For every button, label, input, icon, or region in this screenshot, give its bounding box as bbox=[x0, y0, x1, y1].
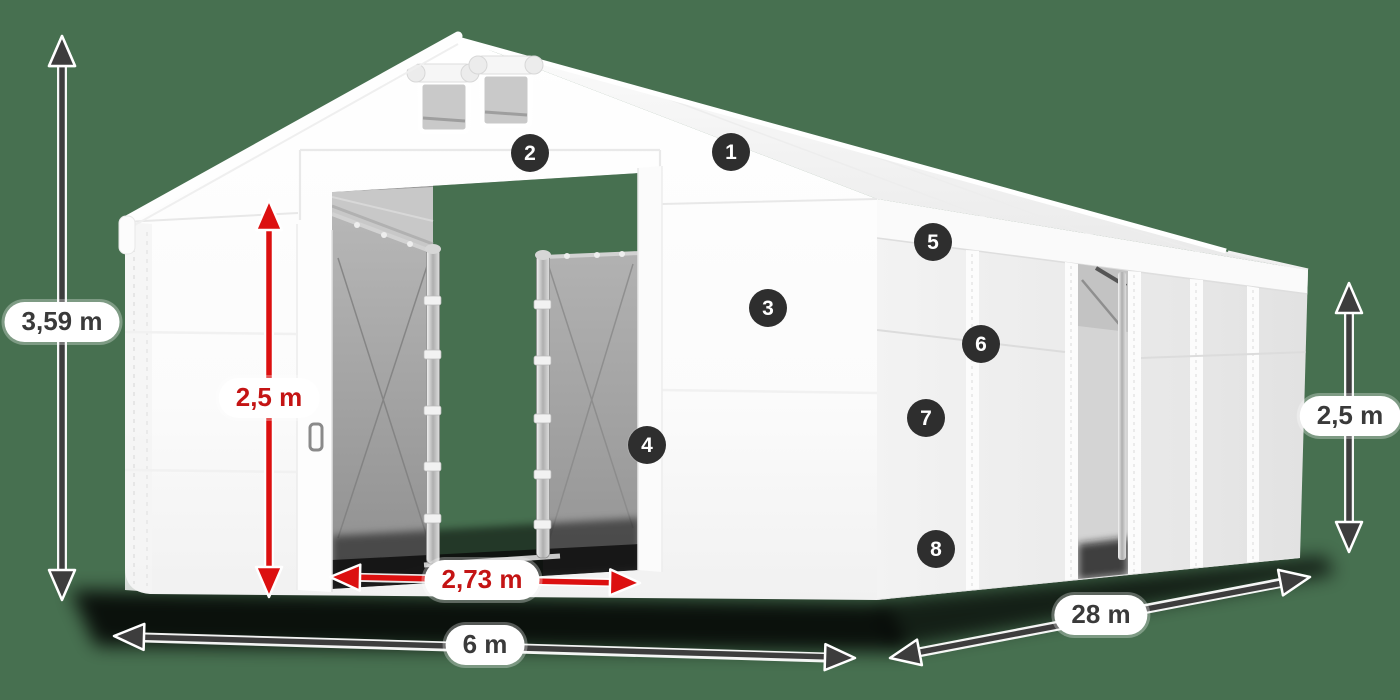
part-badge-4-label: 4 bbox=[641, 435, 653, 456]
part-badge-2-label: 2 bbox=[524, 143, 536, 164]
dimension-label-width: 6 m bbox=[446, 625, 525, 665]
part-badge-3: 3 bbox=[749, 289, 787, 327]
tent-dimension-diagram: 1 2 3 4 5 6 7 8 3,59 m 2,5 m 2,73 m 6 m … bbox=[0, 0, 1400, 700]
front-doorway bbox=[332, 168, 640, 589]
part-badge-4: 4 bbox=[628, 426, 666, 464]
part-badge-1: 1 bbox=[712, 133, 750, 171]
vent-left bbox=[407, 64, 479, 132]
part-badge-2: 2 bbox=[511, 134, 549, 172]
inner-door-panel-right bbox=[543, 251, 640, 553]
tent-illustration bbox=[0, 0, 1400, 700]
vent-right bbox=[469, 56, 543, 126]
part-badge-7: 7 bbox=[907, 399, 945, 437]
dimension-label-side-height: 2,5 m bbox=[1300, 396, 1400, 436]
part-badge-7-label: 7 bbox=[920, 408, 932, 429]
dimension-label-door-width: 2,73 m bbox=[425, 560, 540, 600]
side-sliding-door-gap bbox=[1078, 264, 1128, 580]
part-badge-5-label: 5 bbox=[927, 232, 939, 253]
part-badge-5: 5 bbox=[914, 223, 952, 261]
part-badge-6: 6 bbox=[962, 325, 1000, 363]
front-door-jamb-right bbox=[638, 166, 662, 572]
dimension-label-length: 28 m bbox=[1054, 595, 1147, 635]
door-post-right bbox=[534, 250, 551, 558]
dimension-label-door-height: 2,5 m bbox=[219, 378, 320, 418]
part-badge-8-label: 8 bbox=[930, 539, 942, 560]
part-badge-8: 8 bbox=[917, 530, 955, 568]
part-badge-6-label: 6 bbox=[975, 334, 987, 355]
door-post-left bbox=[424, 244, 441, 564]
part-badge-3-label: 3 bbox=[762, 298, 774, 319]
dimension-label-total-height: 3,59 m bbox=[5, 302, 120, 342]
part-badge-1-label: 1 bbox=[725, 142, 737, 163]
